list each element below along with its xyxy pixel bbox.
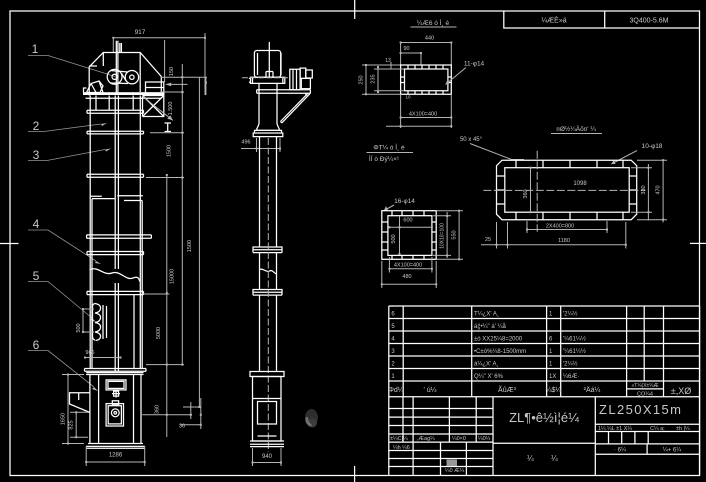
svg-text:±ó XX25¼8=2000: ±ó XX25¼8=2000 <box>474 337 523 343</box>
svg-text:ÇO¼4: ÇO¼4 <box>637 392 653 398</box>
svg-text:1500: 1500 <box>187 240 193 252</box>
svg-text:250: 250 <box>359 75 365 84</box>
svg-text:«T¼(X±¼Æ: «T¼(X±¼Æ <box>632 383 659 389</box>
svg-text:ZL¶•ê½ì¦é¼: ZL¶•ê½ì¦é¼ <box>509 410 579 425</box>
svg-text:'¼61¼½: '¼61¼½ <box>563 348 586 355</box>
svg-text:90: 90 <box>403 46 409 52</box>
svg-text:Q¼" X' 6%: Q¼" X' 6% <box>474 374 504 380</box>
svg-text:' ú¼: ' ú¼ <box>423 387 436 394</box>
svg-text:1: 1 <box>32 42 39 56</box>
svg-text:•C±ó%¼8-1500mm: •C±ó%¼8-1500mm <box>474 349 526 355</box>
svg-text:16-φ14: 16-φ14 <box>394 198 415 205</box>
svg-text:1180: 1180 <box>558 238 570 244</box>
svg-text:'2¼½: '2¼½ <box>563 361 578 368</box>
svg-text:360: 360 <box>523 189 529 198</box>
svg-text:3: 3 <box>33 148 40 162</box>
svg-text:4X100=400: 4X100=400 <box>409 112 437 118</box>
svg-text:440: 440 <box>425 36 434 42</box>
svg-text:10: 10 <box>405 95 411 100</box>
svg-text:¼6Æ·: ¼6Æ· <box>563 374 579 380</box>
svg-text:5: 5 <box>33 269 40 283</box>
svg-text:10-φ18: 10-φ18 <box>642 143 663 150</box>
svg-text:2: 2 <box>33 119 40 133</box>
svg-text:¼ÆÈ»ä: ¼ÆÈ»ä <box>541 16 566 25</box>
svg-text:1.500: 1.500 <box>168 102 174 116</box>
svg-text:¼h ¼6: ¼h ¼6 <box>393 445 410 451</box>
svg-text:50 x 45°: 50 x 45° <box>460 137 483 143</box>
svg-text:á|¦•¼" á' ¼å: á|¦•¼" á' ¼å <box>474 323 507 330</box>
svg-text:,Æag¼: ,Æag¼ <box>417 436 435 442</box>
svg-text:±,XØ: ±,XØ <box>671 386 691 396</box>
svg-text:±h |¼: ±h |¼ <box>676 426 690 432</box>
svg-text:150: 150 <box>169 67 175 76</box>
svg-text:6: 6 <box>33 338 40 352</box>
svg-text:· 6¼: · 6¼ <box>614 448 627 454</box>
svg-text:T¼¿X' A¸: T¼¿X' A¸ <box>474 312 499 318</box>
svg-text:'¼61¼½: '¼61¼½ <box>563 336 586 343</box>
svg-text:¼0 Æ¼: ¼0 Æ¼ <box>445 468 465 474</box>
svg-text:966: 966 <box>85 350 94 356</box>
svg-text:C¼ a;: C¼ a; <box>650 426 665 432</box>
svg-text:¼+ 6¼: ¼+ 6¼ <box>663 448 683 454</box>
svg-text:¼: ¼ <box>527 454 534 463</box>
svg-text:1286: 1286 <box>109 453 123 459</box>
svg-text:11-φ14: 11-φ14 <box>464 61 485 68</box>
svg-text:3Q400-5.6M: 3Q400-5.6M <box>630 18 669 25</box>
svg-text:10X10=100: 10X10=100 <box>440 223 446 249</box>
svg-text:¼0×0: ¼0×0 <box>452 436 466 442</box>
svg-text:235: 235 <box>371 74 377 83</box>
svg-text:²Äá¼: ²Äá¼ <box>584 386 601 394</box>
svg-text:ΦT¼ ó Ì¸ é: ΦT¼ ó Ì¸ é <box>373 143 405 152</box>
svg-text:25: 25 <box>485 237 491 243</box>
svg-text:13: 13 <box>385 58 391 64</box>
svg-text:1650: 1650 <box>61 413 67 425</box>
svg-text:550: 550 <box>452 230 458 239</box>
svg-text:825: 825 <box>69 420 75 429</box>
svg-text:±¼C|¼: ±¼C|¼ <box>390 436 408 442</box>
svg-text:360: 360 <box>155 405 161 414</box>
svg-text:496: 496 <box>241 140 250 146</box>
svg-text:500: 500 <box>391 234 397 243</box>
svg-text:1¼ ¼L ±1 X¼: 1¼ ¼L ±1 X¼ <box>598 426 632 432</box>
svg-text:917: 917 <box>135 29 146 36</box>
svg-text:¼0¼: ¼0¼ <box>478 436 491 442</box>
svg-text:ZL250X15m: ZL250X15m <box>599 402 681 417</box>
svg-text:500: 500 <box>76 323 82 332</box>
svg-text:600: 600 <box>403 218 412 224</box>
svg-text:¼: ¼ <box>551 454 558 463</box>
svg-text:480: 480 <box>402 274 411 280</box>
svg-text:330: 330 <box>641 185 647 194</box>
svg-text:1098: 1098 <box>573 181 587 187</box>
svg-text:15000: 15000 <box>170 269 176 284</box>
svg-text:¼Æ6 ó Ì¸ é: ¼Æ6 ó Ì¸ é <box>417 18 450 27</box>
svg-text:2X400=800: 2X400=800 <box>546 224 574 230</box>
svg-text:940: 940 <box>262 454 273 460</box>
svg-text:á¼¿X' A¸: á¼¿X' A¸ <box>474 362 499 368</box>
svg-text:¤Ø½¼Àõ¤' ¼: ¤Ø½¼Àõ¤' ¼ <box>556 124 596 133</box>
svg-text:1500: 1500 <box>167 145 173 157</box>
svg-text:Φd¼: Φd¼ <box>388 387 403 394</box>
svg-text:470: 470 <box>656 185 662 194</box>
svg-text:4X100=400: 4X100=400 <box>394 263 422 269</box>
svg-text:5000: 5000 <box>156 327 162 339</box>
svg-text:ÃûÆ³: ÃûÆ³ <box>498 385 517 394</box>
svg-text:1X: 1X <box>549 374 556 380</box>
svg-text:¼$¼: ¼$¼ <box>546 387 562 394</box>
svg-text:'2¼½: '2¼½ <box>563 311 578 318</box>
svg-text:ÌÍ ò Ðý¼×¹: ÌÍ ò Ðý¼×¹ <box>369 154 400 163</box>
svg-text:4: 4 <box>33 217 40 231</box>
